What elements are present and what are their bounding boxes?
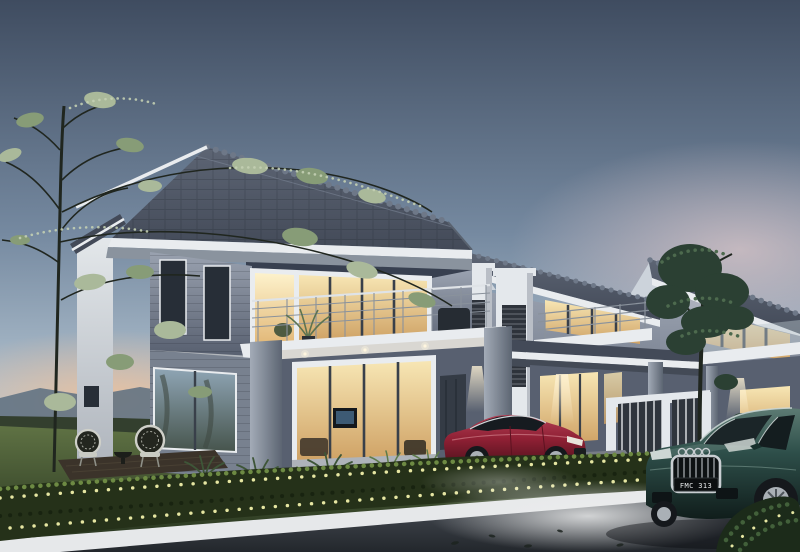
- teal-car-intake: [716, 488, 738, 499]
- driveway-light-pool: [420, 464, 580, 500]
- annex-window: [84, 386, 99, 407]
- glass-sliding-doors: [292, 355, 436, 466]
- upper-window: [204, 266, 230, 340]
- armchair-silhouette: [404, 440, 426, 456]
- license-plate-text: FMC 313: [680, 482, 712, 490]
- teal-car-front-wheel: [651, 501, 677, 527]
- teal-car-license-plate: FMC 313: [674, 478, 718, 491]
- sofa-silhouette: [300, 438, 328, 456]
- ground-side-window: [154, 368, 236, 452]
- tv-screen: [333, 408, 357, 428]
- architectural-render: FMC 313: [0, 0, 800, 552]
